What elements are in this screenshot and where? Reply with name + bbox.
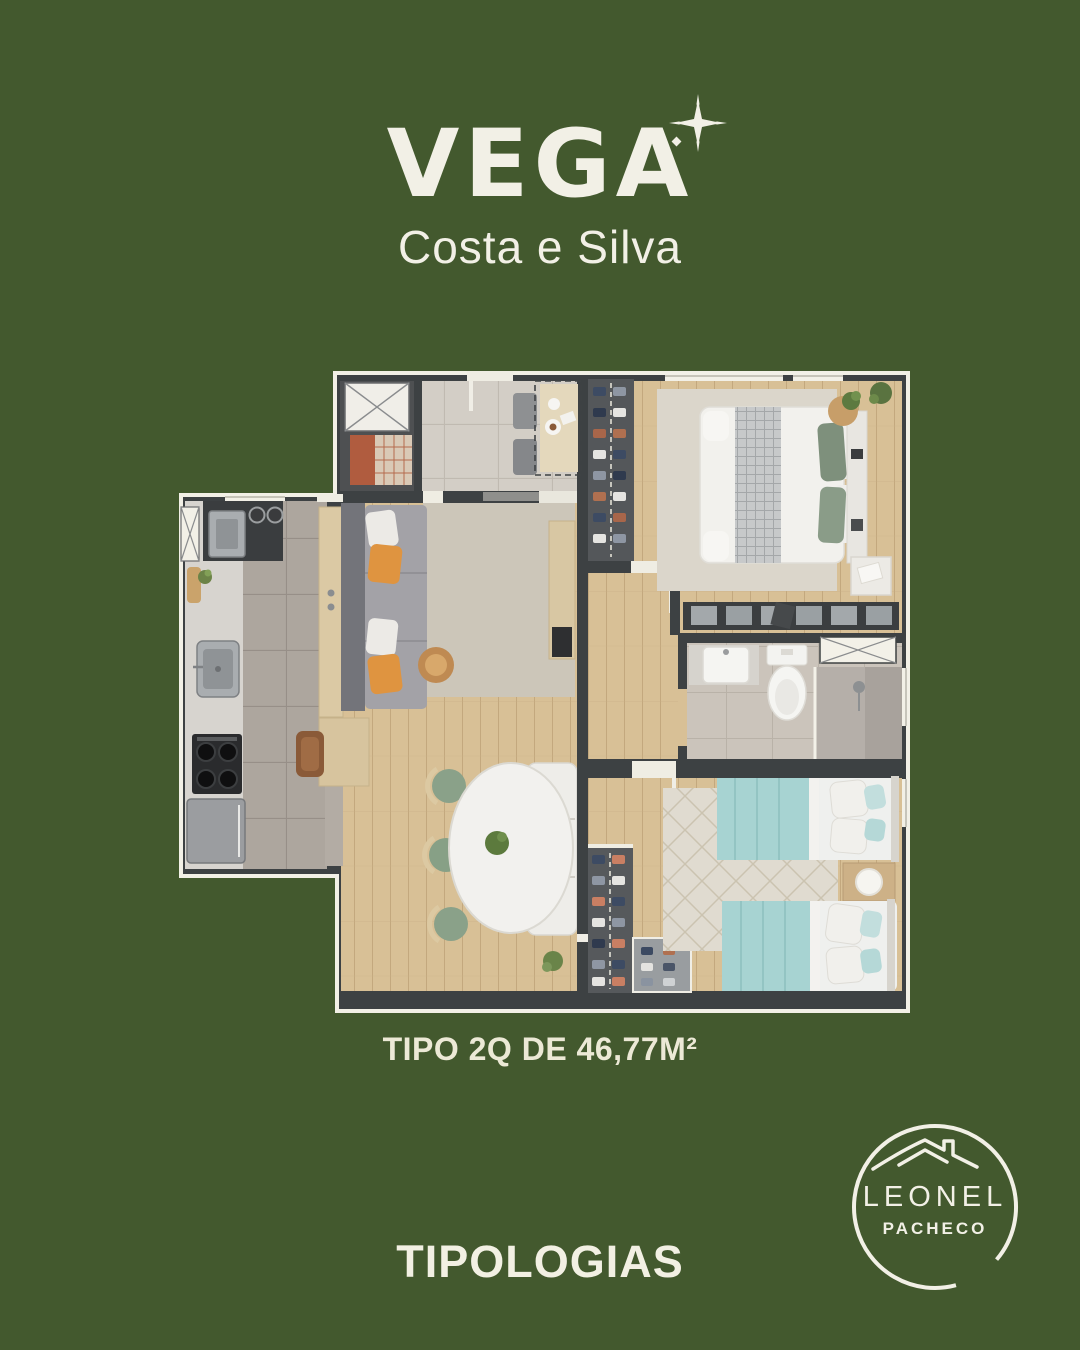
plan-caption: TIPO 2Q DE 46,77M² bbox=[0, 1031, 1080, 1068]
laundry-area bbox=[340, 381, 414, 491]
brand-subtitle: Costa e Silva bbox=[0, 220, 1080, 274]
poster: VEGA Costa e Silva bbox=[0, 0, 1080, 1350]
floor-plan bbox=[175, 371, 915, 1031]
agency-badge: LEONEL PACHECO bbox=[849, 1121, 1021, 1293]
agency-subname: PACHECO bbox=[849, 1219, 1021, 1239]
bedroom-1-closet bbox=[588, 379, 634, 561]
entry-hall bbox=[422, 381, 581, 491]
floor-plan-drawing bbox=[175, 371, 915, 1031]
roofline-icon bbox=[873, 1140, 977, 1169]
living-room bbox=[341, 503, 578, 711]
agency-name: LEONEL bbox=[849, 1181, 1021, 1214]
brand-logo: VEGA Costa e Silva bbox=[0, 118, 1080, 274]
brand-name: VEGA bbox=[387, 118, 694, 212]
bathroom bbox=[687, 637, 902, 759]
sparkle-icon bbox=[669, 94, 727, 152]
